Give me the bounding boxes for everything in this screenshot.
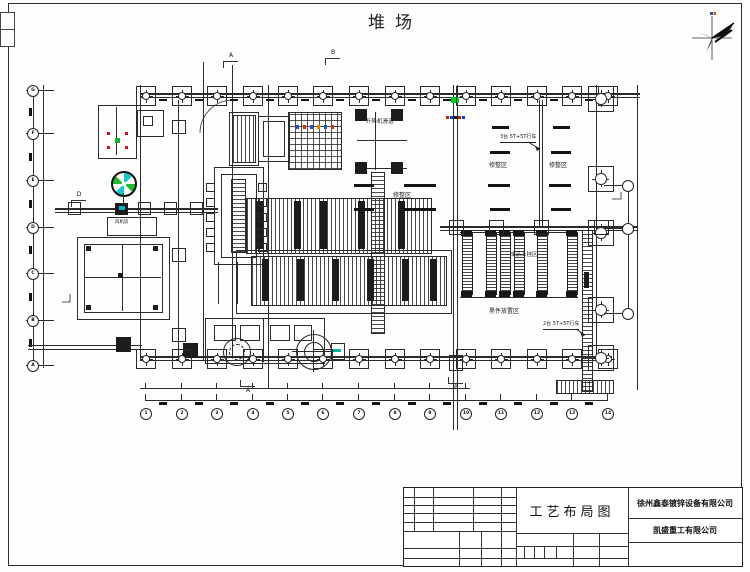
line [460,297,578,298]
grid-bubble: 4 [247,408,259,420]
storage-dash [551,151,571,154]
line [539,100,540,228]
wall-column [594,220,609,235]
column-square [278,86,298,106]
column-square [207,86,227,106]
color-mark [450,116,453,119]
room-dot [118,273,123,278]
grid-bubble: 5 [282,408,294,420]
dim-dash [29,153,32,161]
rack-cap [513,230,524,236]
storage-dash [549,184,571,187]
column-square [562,349,582,369]
column-square [491,349,511,369]
dim-tick [287,383,288,388]
hatch-block [251,256,447,306]
drawing-name: 工艺布局图 [516,488,628,533]
kettle-tick [206,198,215,207]
color-mark [125,146,128,149]
section-marker: A [224,52,238,62]
dim-dash [159,402,167,405]
rack-bar [486,233,497,295]
dim-dash [585,402,593,405]
hatch-block [288,112,342,170]
column-square [243,86,263,106]
dim-tick [216,394,217,401]
column-square [243,349,263,369]
line [628,180,629,320]
kettle-tick [258,213,267,222]
dim-tick [216,383,217,388]
zone-label: 成品上挂区 [510,252,538,258]
line [542,100,543,228]
column-square [385,86,405,106]
section-marker: A [241,386,255,396]
dim-tick [465,383,466,388]
zone-label: 风机房 [115,221,129,226]
rack-bar [537,233,548,295]
dim-dash [408,99,416,102]
grid-bubble [622,223,634,235]
cad-drawing-page: 堆场 1234567891011121314GFEDCBA升降机滑道修整区修整区… [0,0,750,572]
dim-tick [536,394,537,401]
column-square [456,349,476,369]
rack-bar [567,233,578,295]
dim-dash [29,246,32,254]
title-block: 工艺布局图 徐州鑫泰镀锌设备有限公司 凯盛重工有限公司 [403,487,743,567]
wall-column [449,220,464,235]
storage-dash [490,151,510,154]
column-square [172,86,192,106]
dim-dash [336,99,344,102]
color-mark [317,125,320,129]
elevator-column [355,162,367,174]
solid-block [584,272,589,288]
room-dot [86,246,91,251]
dim-dash [29,200,32,208]
color-mark [462,116,465,119]
line [140,388,470,389]
dim-dash [230,402,238,405]
tank-bar [402,259,409,301]
room-dot [153,246,158,251]
column-square [313,86,333,106]
tank-bar [430,259,437,301]
outline [84,244,163,313]
dim-dash [550,99,558,102]
zone-label: 黑件放置区 [489,309,519,316]
grid-bubble: 1 [140,408,152,420]
storage-dash [354,208,374,211]
color-mark [310,125,313,129]
grid-bubble: E [27,175,39,187]
grid-bubble: 12 [531,408,543,420]
rack-cap [499,291,510,297]
conveyor-block [164,202,177,215]
column-square [313,349,333,369]
grid-bubble: C [27,268,39,280]
column-square [349,86,369,106]
column-square [562,86,582,106]
dim-dash [195,402,203,405]
rack-cap [485,291,496,297]
grid-bubble [622,180,634,192]
column-square [207,349,227,369]
column-square [588,86,614,112]
color-mark [333,349,341,352]
dim-tick [394,394,395,401]
grid-bubble: 11 [495,408,507,420]
column-square [349,349,369,369]
tank-bar [367,259,374,301]
line [218,262,219,304]
rack-cap [566,291,577,297]
kettle-tick [206,228,215,237]
rail-block [172,248,186,262]
zone-label: 3台 5T+5T行车 [500,135,536,143]
dim-dash [443,402,451,405]
tank-bar [256,201,263,249]
column-square [527,86,547,106]
outline [263,121,285,157]
rail-block [172,328,186,342]
column-square [172,349,192,369]
company-name-1: 徐州鑫泰镀锌设备有限公司 [628,488,742,518]
storage-dash [404,208,436,211]
dim-dash [230,99,238,102]
grid-bubble: A [27,360,39,372]
color-mark [107,132,110,135]
line [203,62,204,360]
grid-bubble: 3 [211,408,223,420]
column-square [136,86,156,106]
column-square [420,349,440,369]
solid-block [116,337,131,352]
grid-bubble: 8 [389,408,401,420]
tank-bar [320,201,327,249]
color-mark [331,125,334,129]
dim-tick [429,394,430,401]
dim-tick [465,394,466,401]
column-square [527,349,547,369]
zone-label: 修整区 [393,193,411,200]
grid-bubble: 10 [460,408,472,420]
room-dot [86,305,91,310]
dim-dash [301,402,309,405]
rack-cap [461,291,472,297]
dim-dash [514,99,522,102]
outline [270,325,290,341]
dim-dash [159,99,167,102]
zone-label: 修整区 [549,163,567,170]
kettle-tick [258,183,267,192]
dim-tick [181,383,182,388]
dim-dash [29,293,32,301]
dim-dash [372,99,380,102]
dim-tick [358,383,359,388]
dim-tick [429,383,430,388]
dim-tick [322,383,323,388]
dim-tick [358,394,359,401]
kettle-tick [206,183,215,192]
column-square [491,86,511,106]
color-mark [303,125,306,129]
hatch-block [231,179,246,253]
dim-tick [145,383,146,388]
kettle-tick [206,213,215,222]
dim-dash [195,99,203,102]
zone-label: 修整区 [489,163,507,170]
conveyor-block [138,202,151,215]
dim-tick [500,394,501,401]
dim-dash [266,99,274,102]
wall-column [534,220,549,235]
color-mark [454,116,457,119]
grid-bubble: G [27,85,39,97]
grid-bubble: F [27,128,39,140]
zone-label: 升降机滑道 [366,119,394,125]
dim-dash [266,402,274,405]
rack-bar [462,233,473,295]
column-square [588,166,614,192]
section-marker: B [326,49,340,59]
line [637,85,638,390]
line [453,85,454,430]
rack-cap [513,291,524,297]
elevator-column [391,162,403,174]
dim-dash [514,402,522,405]
column-square [456,86,476,106]
tank-bar [332,259,339,301]
tank-bar [294,201,301,249]
room-dot [153,305,158,310]
grid-bubble: 2 [176,408,188,420]
rack-cap [566,230,577,236]
column-square [588,345,614,371]
dim-tick [287,394,288,401]
color-mark [458,116,461,119]
section-marker: D [72,191,86,201]
dim-dash [550,402,558,405]
color-mark [125,132,128,135]
storage-dash [404,184,436,187]
column-square [385,349,405,369]
grid-bubble: 6 [317,408,329,420]
dim-dash [479,99,487,102]
wall-column [489,220,504,235]
color-mark [324,125,327,129]
dim-dash [443,99,451,102]
dim-tick [145,394,146,401]
storage-dash [492,126,509,129]
grid-bubble: 7 [353,408,365,420]
outline [214,325,236,341]
dim-dash [372,402,380,405]
hatch-block [232,115,256,163]
dim-dash [408,402,416,405]
column-square [420,86,440,106]
line [457,85,458,430]
dim-tick [571,394,572,401]
line [145,400,607,401]
dim-dash [479,402,487,405]
grid-bubble: 13 [566,408,578,420]
rack-cap [536,291,547,297]
tank-bar [262,259,269,301]
kettle-tick [258,198,267,207]
outline [98,105,137,159]
dim-tick [322,394,323,401]
storage-dash [490,208,510,211]
grid-bubble: B [27,315,39,327]
dim-tick [607,394,608,401]
storage-dash [354,184,374,187]
line [178,100,179,356]
storage-dash [551,208,571,211]
line [357,140,407,141]
color-mark [107,146,110,149]
tank-bar [297,259,304,301]
rail-block [172,120,186,134]
storage-dash [553,126,570,129]
dim-tick [394,383,395,388]
rack-bar [514,233,525,295]
outline [240,325,260,341]
rack-bar [500,233,511,295]
dim-tick [604,185,624,186]
dim-tick [181,394,182,401]
hatch-block [556,380,614,394]
grid-bubble: D [27,222,39,234]
conveyor-block [68,202,81,215]
dim-dash [301,99,309,102]
conveyor-block [190,202,203,215]
color-mark [296,125,299,129]
dim-tick [604,313,624,314]
grid-bubble [622,308,634,320]
column-square [136,349,156,369]
company-name-2: 凯盛重工有限公司 [628,518,742,542]
color-mark [119,206,125,210]
zone-label: 2台 5T+5T行车 [543,322,579,330]
dim-dash [29,108,32,116]
dim-dash [336,402,344,405]
column-square [588,297,614,323]
column-square [278,349,298,369]
section-marker: B [449,383,463,393]
dim-dash [29,339,32,347]
kettle-tick [206,243,215,252]
kettle-tick [258,228,267,237]
outline [294,325,312,341]
color-mark [115,138,120,143]
kettle-tick [258,243,267,252]
hatch-block [371,172,385,334]
outline [143,116,153,126]
color-mark [446,116,449,119]
grid-bubble: 9 [424,408,436,420]
storage-dash [488,184,510,187]
grid-bubble: 14 [602,408,614,420]
